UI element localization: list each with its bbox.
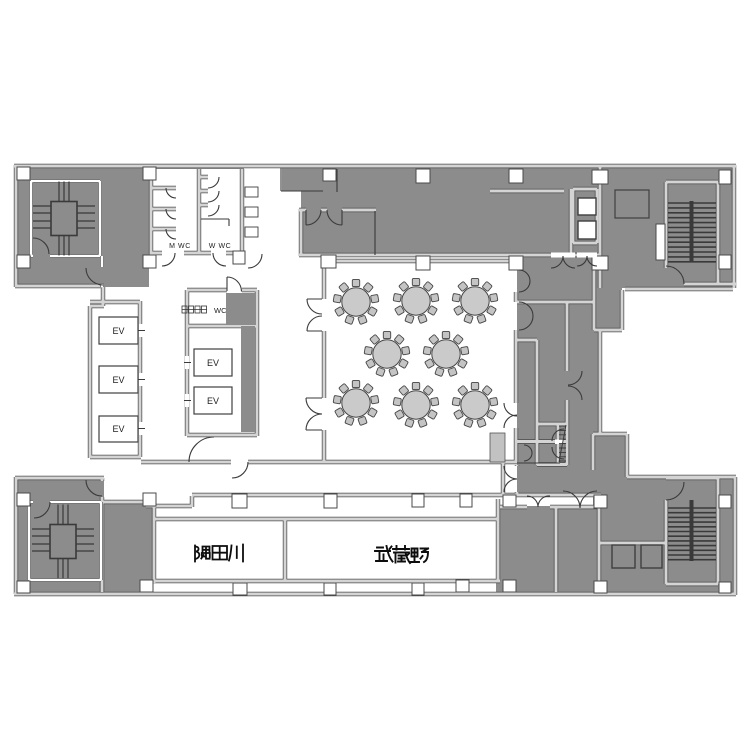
svg-text:M WC: M WC [169, 243, 191, 250]
svg-text:EV: EV [112, 375, 124, 385]
svg-text:EV: EV [207, 358, 219, 368]
svg-text:EV: EV [112, 424, 124, 434]
svg-text:W WC: W WC [209, 243, 232, 250]
svg-text:EV: EV [112, 326, 124, 336]
svg-text:WC: WC [214, 306, 227, 315]
svg-text:EV: EV [207, 396, 219, 406]
